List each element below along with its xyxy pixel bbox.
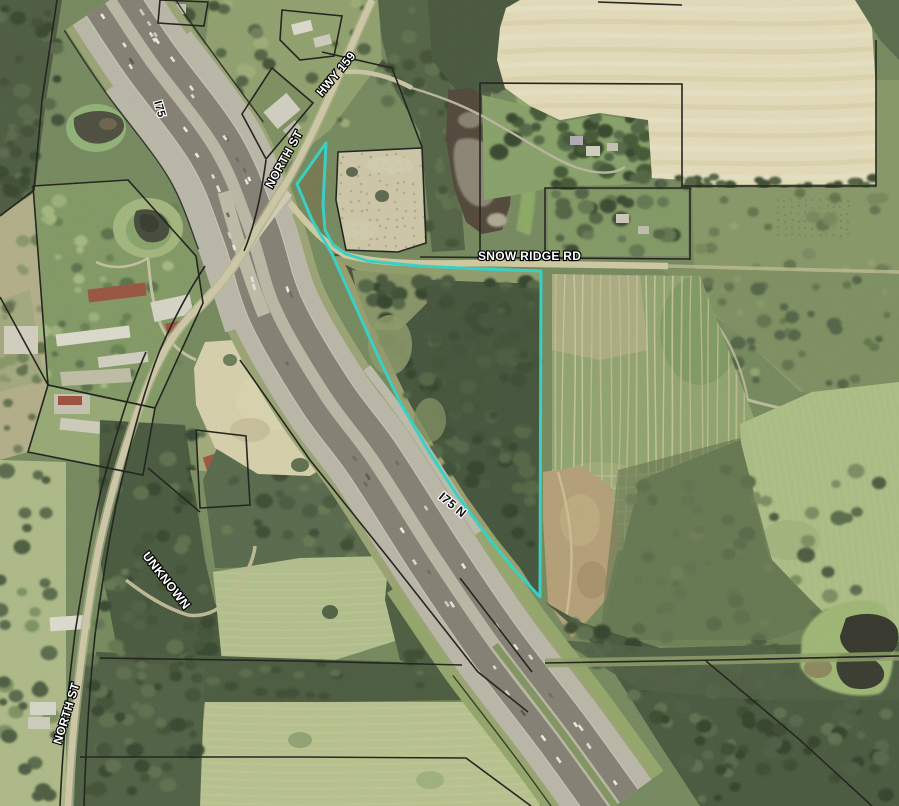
svg-text:SNOW RIDGE RD: SNOW RIDGE RD (478, 249, 581, 263)
